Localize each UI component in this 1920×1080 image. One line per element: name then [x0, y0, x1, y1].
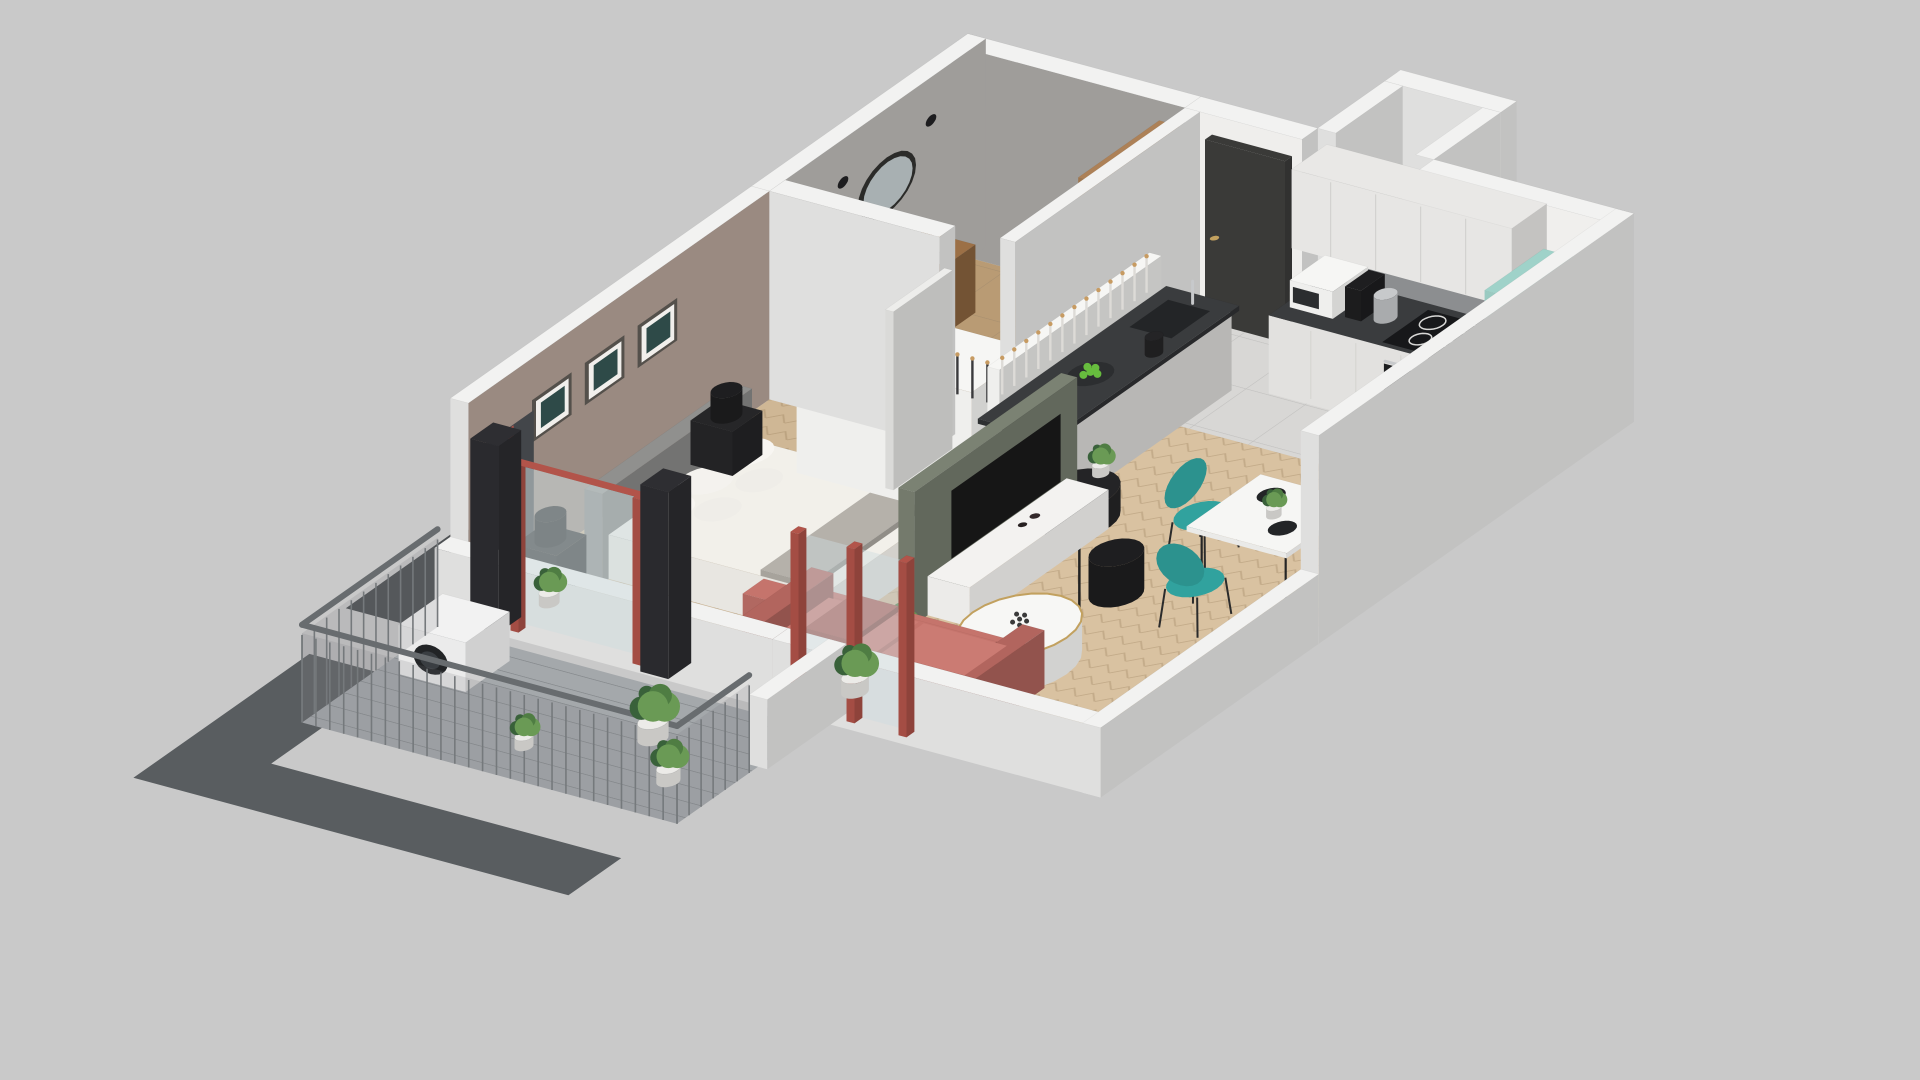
balcony-door-post-3 [899, 555, 915, 737]
curtain-east[interactable] [640, 468, 691, 679]
floorplan-render-stage [0, 0, 1920, 1080]
curtain-west[interactable] [470, 423, 521, 634]
apartment-3d-floorplan[interactable] [0, 0, 1920, 1080]
kettle[interactable] [1374, 288, 1398, 324]
utensil-cup [1145, 331, 1164, 357]
table-lamp-north[interactable] [711, 382, 743, 424]
bedroom-window-glass[interactable] [522, 466, 642, 656]
black-side-table[interactable] [1089, 539, 1145, 608]
